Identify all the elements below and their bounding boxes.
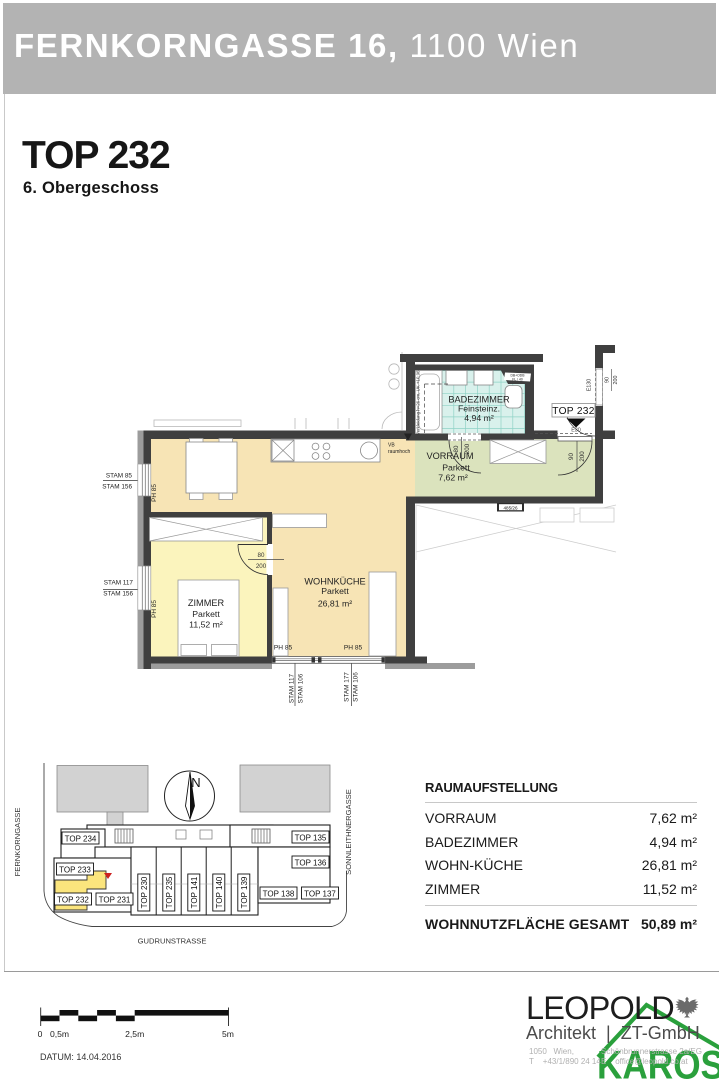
svg-text:Parkett: Parkett [442, 463, 470, 473]
svg-text:FL / 40: FL / 40 [512, 378, 523, 382]
svg-text:200: 200 [256, 563, 267, 570]
svg-text:STAM 177: STAM 177 [344, 672, 351, 702]
svg-text:Parkett: Parkett [192, 609, 220, 619]
svg-text:11,52 m²: 11,52 m² [189, 620, 223, 630]
svg-text:E30: E30 [571, 428, 581, 434]
svg-text:Parkett: Parkett [321, 586, 349, 596]
svg-text:PH 85: PH 85 [274, 645, 293, 652]
svg-text:PH 85: PH 85 [151, 484, 158, 502]
svg-text:TOP 232: TOP 232 [57, 895, 89, 904]
svg-text:200: 200 [613, 376, 619, 385]
svg-text:VB: VB [388, 443, 395, 449]
svg-text:TOP 141: TOP 141 [190, 876, 199, 908]
svg-text:ZIMMER: ZIMMER [188, 598, 225, 608]
svg-text:200: 200 [579, 451, 586, 462]
svg-text:raumhoch: raumhoch [388, 449, 410, 455]
svg-text:STAM 117: STAM 117 [289, 673, 296, 703]
svg-text:STAM 106: STAM 106 [353, 672, 360, 702]
svg-text:GUDRUNSTRASSE: GUDRUNSTRASSE [138, 937, 207, 946]
svg-text:TOP 139: TOP 139 [240, 876, 249, 908]
svg-text:STAM 156: STAM 156 [102, 484, 132, 491]
svg-text:STAM 156: STAM 156 [103, 591, 133, 598]
svg-text:80: 80 [258, 552, 265, 559]
svg-text:FERNKORNGASSE: FERNKORNGASSE [13, 808, 22, 877]
svg-text:TOP 137: TOP 137 [304, 889, 336, 898]
svg-text:TOP 230: TOP 230 [140, 876, 149, 908]
svg-text:PH 85: PH 85 [344, 645, 363, 652]
svg-text:N: N [191, 775, 200, 790]
svg-text:485/26: 485/26 [503, 505, 517, 510]
svg-text:80: 80 [453, 445, 460, 452]
svg-text:TOP 138: TOP 138 [263, 889, 295, 898]
svg-text:SONNLEITHNERGASSE: SONNLEITHNERGASSE [344, 789, 353, 875]
svg-text:90: 90 [605, 377, 611, 383]
svg-text:0: 0 [38, 1029, 43, 1039]
svg-text:4,94 m²: 4,94 m² [464, 413, 494, 423]
svg-text:TOP 135: TOP 135 [295, 833, 327, 842]
svg-text:2,5m: 2,5m [125, 1029, 144, 1039]
svg-text:5m: 5m [222, 1029, 234, 1039]
svg-text:200: 200 [464, 443, 471, 454]
svg-text:PH 85: PH 85 [151, 600, 158, 618]
svg-text:TOP 232: TOP 232 [552, 406, 595, 417]
svg-text:TOP 234: TOP 234 [65, 834, 97, 843]
svg-text:Verkleidung h=26 cm, UK +10,96: Verkleidung h=26 cm, UK +10,96 [416, 370, 421, 435]
svg-text:0,5m: 0,5m [50, 1029, 69, 1039]
svg-text:90: 90 [568, 453, 575, 460]
svg-text:E130: E130 [587, 379, 593, 392]
svg-text:Feinsteinz.: Feinsteinz. [458, 404, 500, 414]
svg-text:STAM 117: STAM 117 [104, 580, 134, 587]
svg-text:TOP 136: TOP 136 [295, 858, 327, 867]
svg-text:TOP 140: TOP 140 [215, 876, 224, 908]
svg-text:26,81 m²: 26,81 m² [318, 599, 352, 609]
svg-text:STAM 106: STAM 106 [298, 673, 305, 703]
svg-text:TOP 233: TOP 233 [59, 865, 91, 874]
svg-text:STAM 85: STAM 85 [106, 473, 133, 480]
svg-text:WOHNKÜCHE: WOHNKÜCHE [304, 577, 365, 587]
svg-text:7,62 m²: 7,62 m² [438, 473, 468, 483]
svg-text:TOP 231: TOP 231 [99, 895, 131, 904]
svg-text:TOP 235: TOP 235 [165, 876, 174, 908]
